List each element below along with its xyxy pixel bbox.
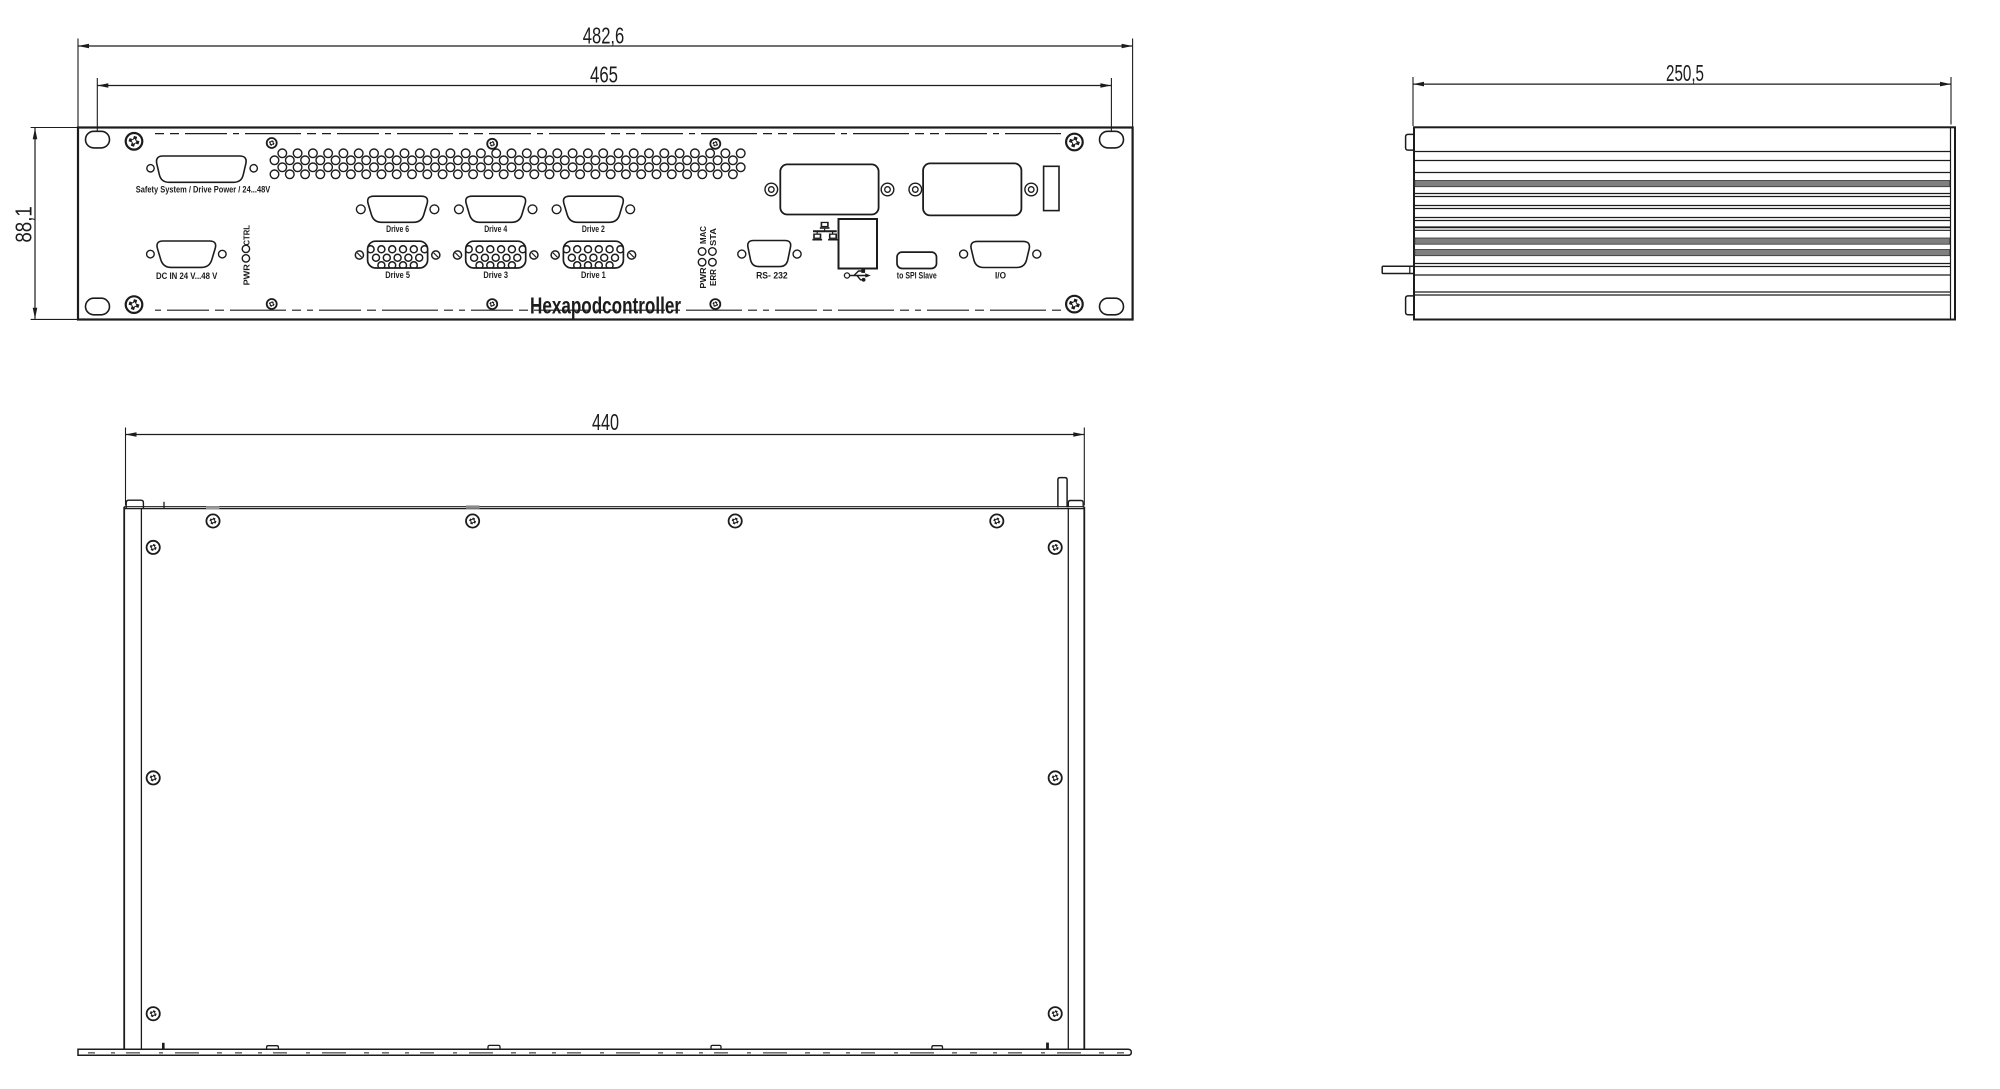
svg-text:PWR: PWR — [243, 264, 252, 285]
svg-text:440: 440 — [592, 409, 619, 435]
svg-text:Drive 3: Drive 3 — [483, 270, 508, 280]
svg-text:Safety System / Drive Power /: Safety System / Drive Power / 24...48V — [136, 185, 271, 195]
svg-text:DC IN 24 V...48 V: DC IN 24 V...48 V — [156, 271, 217, 281]
svg-text:to SPI Slave: to SPI Slave — [897, 271, 937, 281]
svg-text:Drive 1: Drive 1 — [581, 270, 606, 280]
svg-text:Hexapodcontroller: Hexapodcontroller — [530, 293, 681, 319]
svg-text:PWR: PWR — [699, 267, 708, 288]
svg-text:482,6: 482,6 — [583, 23, 625, 49]
svg-text:I/O: I/O — [995, 271, 1006, 281]
svg-text:Drive 5: Drive 5 — [385, 270, 410, 280]
svg-text:250,5: 250,5 — [1666, 60, 1704, 86]
svg-text:MAC: MAC — [699, 226, 708, 244]
svg-text:STA: STA — [709, 228, 718, 246]
svg-text:Drive 6: Drive 6 — [386, 224, 409, 234]
svg-text:ERR: ERR — [709, 269, 718, 286]
svg-text:Drive 2: Drive 2 — [582, 224, 605, 234]
svg-text:Drive 4: Drive 4 — [484, 224, 507, 234]
svg-text:465: 465 — [590, 62, 618, 88]
svg-text:88,1: 88,1 — [11, 206, 37, 243]
svg-text:CTRL: CTRL — [243, 225, 252, 246]
svg-text:RS- 232: RS- 232 — [756, 271, 788, 281]
